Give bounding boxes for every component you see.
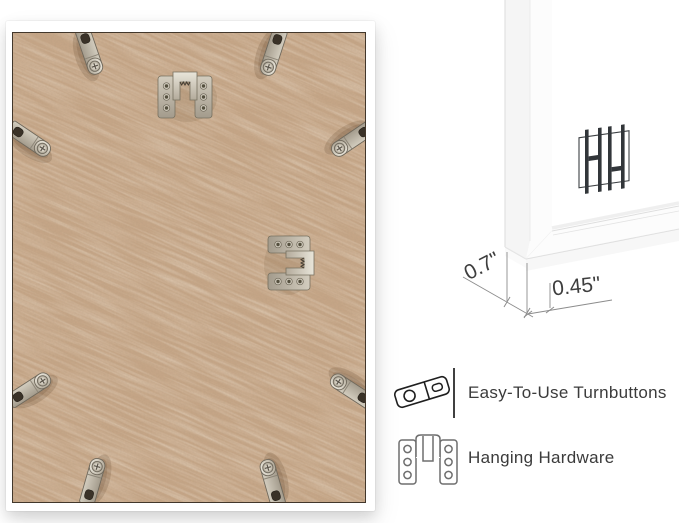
turnbutton-hardware xyxy=(232,442,312,502)
legend-label-hanging-hardware: Hanging Hardware xyxy=(468,448,615,468)
turnbutton-hardware xyxy=(13,100,70,180)
turnbutton-hardware xyxy=(311,350,365,430)
hanging-hardware xyxy=(251,223,331,303)
frame-corner-detail: 0.7" 0.45" xyxy=(440,0,679,330)
frame-back-panel xyxy=(6,21,375,511)
turnbutton-icon xyxy=(394,366,462,420)
brand-logo-hh xyxy=(579,124,629,195)
turnbutton-hardware xyxy=(50,33,130,92)
product-image: 0.7" 0.45" Easy-To-Use Turnbuttons Hangi… xyxy=(0,0,679,523)
hanging-hardware xyxy=(145,55,225,135)
legend-label-turnbuttons: Easy-To-Use Turnbuttons xyxy=(468,383,667,403)
hanging-hardware-icon xyxy=(397,430,459,486)
frame-side-face xyxy=(505,0,530,259)
turnbutton-hardware xyxy=(312,100,365,180)
dimension-face-label: 0.45" xyxy=(551,273,601,301)
turnbutton-hardware xyxy=(53,441,133,502)
turnbutton-hardware xyxy=(13,349,70,429)
turnbutton-hardware xyxy=(233,33,313,93)
mdf-backing xyxy=(13,33,365,502)
